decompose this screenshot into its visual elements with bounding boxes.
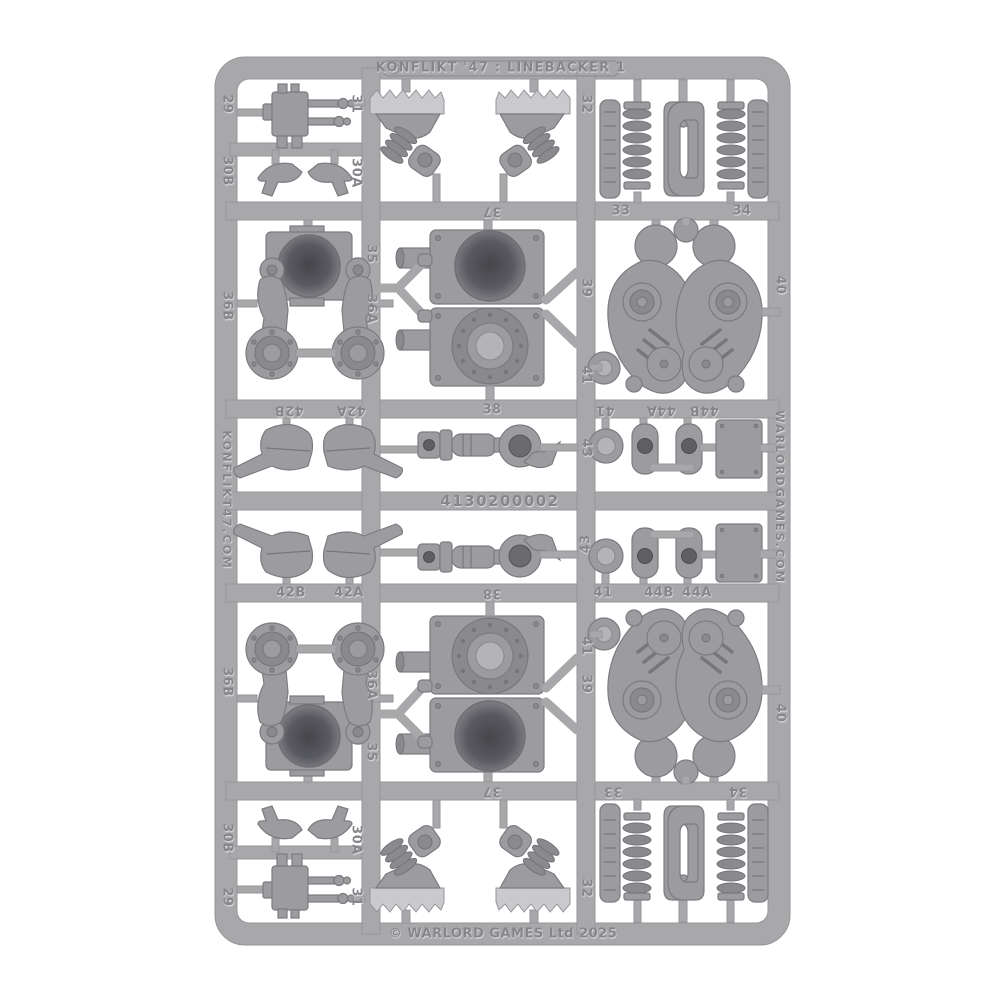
part-label-41-top-rail: 41 [579,365,594,384]
part-label-44B-div3: 44B [644,586,674,601]
part-label-29-bot: 29 [220,887,235,906]
part-label-43-upper: 43 [579,438,594,457]
part-label-38-div3: 38 [482,586,501,601]
part-37-foot [370,79,444,202]
part-label-36B-bot: 36B [220,667,235,697]
rail-v1 [362,68,380,934]
part-label-39-bot: 39 [579,674,594,693]
sprue-title: KONFLIKT '47 : LINEBACKER 1 [376,61,627,76]
left-rail-url: KONFLIKT47.COM [220,430,234,569]
part-label-39-top: 39 [579,278,594,297]
part-label-31-top: 31 [349,94,364,113]
copyright-text: © WARLORD GAMES Ltd 2025 [389,927,618,942]
part-30-wing [258,150,302,196]
part-label-40-bot: 40 [773,703,788,722]
part-label-38-div2: 38 [482,403,501,418]
part-label-37-bot: 37 [482,784,501,799]
part-44-clips-and-plate [632,418,779,478]
right-rail-url: WARLORDGAMES.COM [773,410,787,584]
part-label-36A-top: 36A [364,294,379,324]
part-label-35-bot: 35 [364,742,379,761]
product-photo: KONFLIKT '47 : LINEBACKER 1 © WARLORD GA… [0,0,1000,1000]
part-label-30A-top: 30A [349,158,364,188]
part-label-33-bot: 33 [603,784,622,799]
part-label-36B-top: 36B [220,291,235,321]
part-label-40-top: 40 [773,275,788,294]
sprue-photo: KONFLIKT '47 : LINEBACKER 1 © WARLORD GA… [0,0,1000,1000]
part-label-42A-div3: 42A [334,586,364,601]
part-label-41-div3: 41 [593,586,612,601]
part-label-34-top: 34 [732,204,751,219]
part-label-42A-div2: 42A [336,403,366,418]
part-label-29-top: 29 [220,94,235,113]
part-label-42B-div3: 42B [276,586,306,601]
part-label-30A-bot: 30A [349,825,364,855]
part-29-31-weapon-block [237,84,365,148]
part-label-33-top: 33 [611,204,630,219]
part-label-44B-div2: 44B [689,403,719,418]
part-label-37-top: 37 [482,204,501,219]
part-label-32-top: 32 [579,94,594,113]
part-label-32-bot: 32 [579,878,594,897]
part-label-31-bot: 31 [349,887,364,906]
part-43-arm [380,425,578,468]
part-label-43-lower: 43 [579,534,594,553]
part-label-35-top: 35 [364,244,379,263]
part-label-42B-div2: 42B [274,403,304,418]
part-label-41-div2: 41 [595,403,614,418]
part-42-shoulder-pad [234,418,313,478]
part-label-41-bot-rail: 41 [579,636,594,655]
part-label-44A-div2: 44A [646,403,676,418]
part-label-44A-div3: 44A [682,586,712,601]
part-label-34-bot: 34 [728,784,747,799]
part-label-30B-top: 30B [220,156,235,186]
product-code: 4130200002 [440,492,559,510]
part-label-36A-bot: 36A [364,670,379,700]
rail-v2 [577,68,595,934]
part-label-30B-bot: 30B [220,823,235,853]
part-hull-bearing [396,308,544,400]
